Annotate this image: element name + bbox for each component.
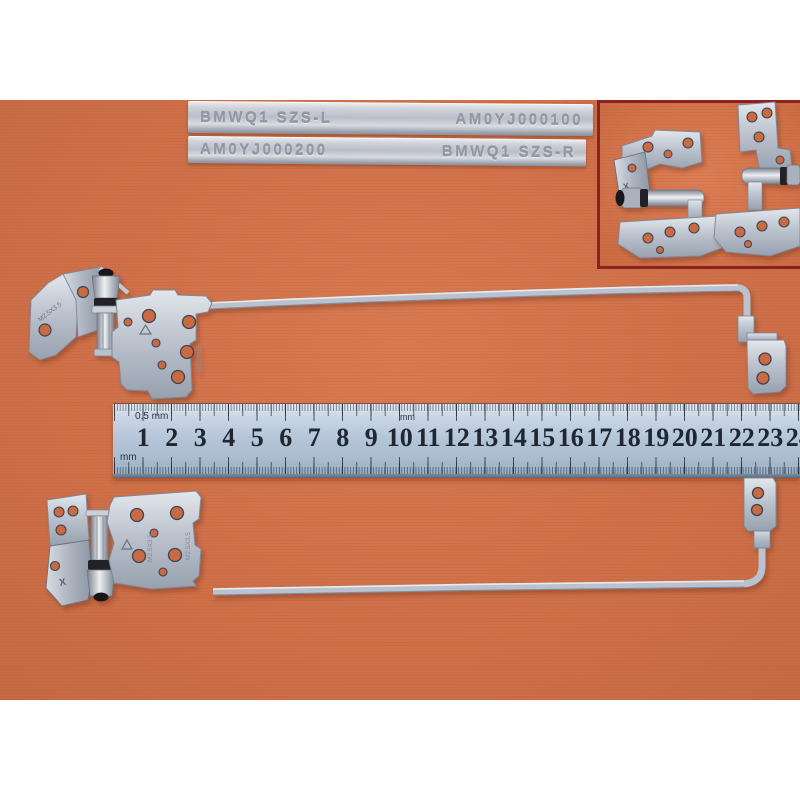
- upper-hinge: M2.5X3.5 M2.5X3.5: [29, 267, 786, 399]
- lower-hinge: X M2.5X3.5 M2.5X3.5: [46, 478, 776, 606]
- inset-right-hinge: [714, 102, 800, 256]
- hinges-illustration: M2.5X3.5 M2.5X3.5: [0, 0, 800, 800]
- lower-plate-stamp-2: M2.5X3.5: [147, 534, 154, 562]
- product-photo-canvas: BMWQ1 SZS-L AM0YJ000100 AM0YJ000200 BMWQ…: [0, 0, 800, 800]
- inset-left-hinge: X: [614, 130, 722, 258]
- lower-plate-stamp-1: M2.5X3.5: [185, 532, 192, 560]
- upper-plate-stamp: M2.5X3.5: [196, 344, 203, 372]
